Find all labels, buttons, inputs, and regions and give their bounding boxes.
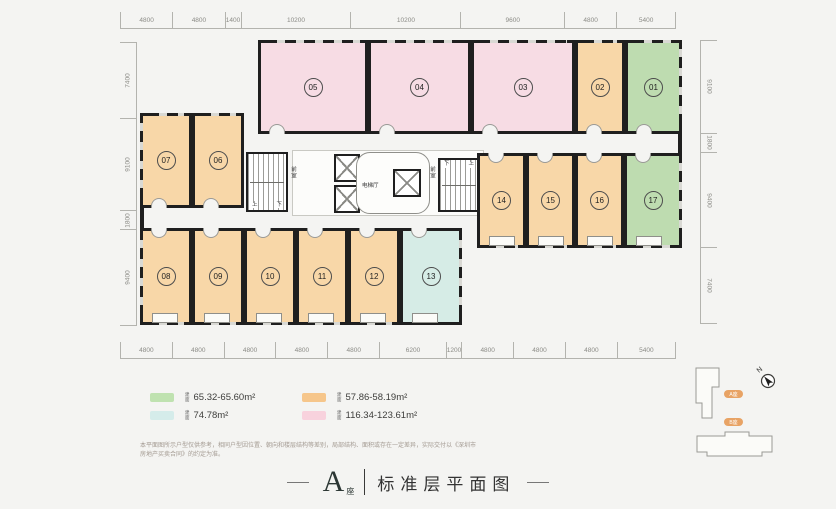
- dim-label-bottom-4: 4800: [328, 342, 380, 358]
- legend-swatch-cyan: [150, 411, 174, 420]
- room-15: 15: [526, 153, 575, 248]
- room-number: 07: [157, 151, 176, 170]
- site-minimap: A座 B座 N: [688, 358, 798, 473]
- room-number: 13: [422, 267, 441, 286]
- balcony-bay: [152, 313, 178, 323]
- legend-item-cyan: 建 面 74.78m²: [150, 408, 255, 422]
- room-number: 04: [410, 78, 429, 97]
- window: [376, 40, 463, 43]
- window: [633, 40, 674, 43]
- window: [140, 237, 143, 316]
- legend-column-2: 建 面 57.86-58.19m² 建 面 116.34-123.61m²: [302, 390, 417, 422]
- balcony-bay: [308, 313, 334, 323]
- room-number: 11: [313, 267, 332, 286]
- stair-east: 下 上: [438, 158, 480, 212]
- room-number: 02: [591, 78, 610, 97]
- balcony-bay: [489, 236, 515, 246]
- room-04: 04: [368, 40, 471, 134]
- door-arc: [636, 124, 652, 134]
- building-b-outline: [697, 432, 772, 456]
- door-arc: [635, 153, 651, 163]
- room-number: 05: [304, 78, 323, 97]
- title-rule-right: [527, 482, 549, 483]
- room-number: 10: [261, 267, 280, 286]
- room-12: 12: [348, 228, 400, 325]
- room-14: 14: [477, 153, 526, 248]
- door-arc: [379, 124, 395, 134]
- legend-item-pink: 建 面 116.34-123.61m²: [302, 408, 417, 422]
- building-a-outline: [696, 368, 719, 418]
- room-number: 17: [644, 191, 663, 210]
- dimensions-top: 4800480014001020010200960048005400: [120, 12, 676, 29]
- room-number: 14: [492, 191, 511, 210]
- legend-item-orange: 建 面 57.86-58.19m²: [302, 390, 417, 404]
- elevator-lobby: 电梯厅: [356, 152, 430, 214]
- dim-label-bottom-5: 6200: [380, 342, 447, 358]
- legend-swatch-green: [150, 393, 174, 402]
- north-label: N: [756, 366, 764, 375]
- dim-label-top-2: 1400: [226, 12, 242, 28]
- legend-value: 74.78m²: [194, 410, 229, 421]
- balcony-bay: [538, 236, 564, 246]
- dim-label-bottom-0: 4800: [120, 342, 173, 358]
- dim-label-bottom-6: 1200: [447, 342, 462, 358]
- door-arc: [359, 228, 375, 238]
- window: [583, 40, 617, 43]
- door-arc: [586, 124, 602, 134]
- dim-label-right-3: 7400: [701, 248, 717, 324]
- room-17: 17: [624, 153, 682, 248]
- stair-up-label: 上: [468, 162, 474, 168]
- building-b-pill: B座: [724, 418, 743, 426]
- stair-down-label: 下: [276, 203, 282, 209]
- room-number: 12: [365, 267, 384, 286]
- legend-unit-tag: 建 面: [337, 410, 342, 420]
- dim-label-bottom-7: 4800: [462, 342, 514, 358]
- legend-unit-tag: 建 面: [185, 410, 190, 420]
- dim-label-right-2: 9400: [701, 153, 717, 249]
- balcony-bay: [256, 313, 282, 323]
- dim-label-top-5: 9600: [461, 12, 565, 28]
- dim-label-bottom-8: 4800: [514, 342, 566, 358]
- dim-label-left-1: 9100: [120, 119, 136, 212]
- door-arc: [269, 124, 285, 134]
- block-suffix: 座: [346, 486, 354, 497]
- room-13: 13: [400, 228, 462, 325]
- legend-unit-tag: 建 面: [185, 392, 190, 402]
- dim-label-top-7: 5400: [617, 12, 676, 28]
- title-text: 标准层平面图: [377, 470, 515, 495]
- room-10: 10: [244, 228, 296, 325]
- dim-label-bottom-2: 4800: [225, 342, 277, 358]
- balcony-bay: [587, 236, 613, 246]
- door-arc: [411, 228, 427, 238]
- room-number: 09: [209, 267, 228, 286]
- legend-swatch-pink: [302, 411, 326, 420]
- stair-up-label: 上: [252, 203, 258, 209]
- room-number: 01: [644, 78, 663, 97]
- dim-label-top-4: 10200: [351, 12, 461, 28]
- room-03: 03: [471, 40, 575, 134]
- door-arc: [488, 153, 504, 163]
- balcony-bay: [636, 236, 662, 246]
- vestibule-west-label: 前室: [289, 166, 297, 179]
- dim-label-left-3: 9400: [120, 230, 136, 326]
- dimensions-left: 7400910018009400: [120, 42, 137, 326]
- door-arc: [537, 153, 553, 163]
- dimensions-bottom: 4800480048004800480062001200480048004800…: [120, 342, 676, 359]
- dim-label-left-0: 7400: [120, 42, 136, 119]
- elevator-lobby-label: 电梯厅: [362, 181, 379, 189]
- dim-label-top-0: 4800: [120, 12, 173, 28]
- legend-value: 65.32-65.60m²: [194, 392, 256, 403]
- disclaimer-text: 本平面图所示户型仅供参考，相同户型因位置、朝向和楼层结构等差别，局部结构、面积或…: [140, 440, 480, 458]
- room-07: 07: [140, 113, 192, 208]
- dim-label-top-1: 4800: [173, 12, 225, 28]
- stair-down-label: 下: [444, 162, 450, 168]
- legend-unit-tag: 建 面: [337, 392, 342, 402]
- room-16: 16: [575, 153, 624, 248]
- dim-label-bottom-3: 4800: [276, 342, 328, 358]
- title-divider: [364, 469, 365, 495]
- block-letter: A: [323, 467, 345, 497]
- floor-plan-page: 4800480014001020010200960048005400 48004…: [0, 0, 836, 509]
- door-arc: [482, 124, 498, 134]
- dim-label-bottom-1: 4800: [173, 342, 225, 358]
- room-05: 05: [258, 40, 368, 134]
- door-arc: [203, 198, 219, 208]
- dim-label-bottom-9: 4800: [566, 342, 618, 358]
- dim-label-right-1: 1800: [701, 134, 717, 153]
- dim-label-bottom-10: 5400: [618, 342, 676, 358]
- room-09: 09: [192, 228, 244, 325]
- legend-value: 57.86-58.19m²: [346, 392, 408, 403]
- dimensions-right: 9100180094007400: [700, 40, 717, 324]
- dim-label-left-2: 1800: [120, 211, 136, 230]
- dim-label-right-0: 9100: [701, 40, 717, 134]
- door-arc: [203, 228, 219, 238]
- door-arc: [307, 228, 323, 238]
- building-a-label: A座: [729, 391, 737, 398]
- legend-column-1: 建 面 65.32-65.60m² 建 面 74.78m²: [150, 390, 255, 422]
- room-number: 03: [514, 78, 533, 97]
- balcony-bay: [204, 313, 230, 323]
- door-arc: [151, 228, 167, 238]
- window: [679, 162, 682, 239]
- door-arc: [255, 228, 271, 238]
- room-02: 02: [575, 40, 625, 134]
- building-b-label: B座: [729, 419, 737, 426]
- window: [459, 237, 462, 316]
- vestibule-east-label: 前室: [428, 166, 436, 179]
- room-11: 11: [296, 228, 348, 325]
- legend-item-green: 建 面 65.32-65.60m²: [150, 390, 255, 404]
- room-number: 15: [541, 191, 560, 210]
- north-compass-icon: N: [756, 366, 775, 388]
- window: [679, 49, 682, 125]
- balcony-bay: [360, 313, 386, 323]
- room-01: 01: [625, 40, 682, 134]
- window: [266, 40, 360, 43]
- legend-value: 116.34-123.61m²: [346, 410, 418, 421]
- window: [479, 40, 567, 43]
- room-number: 08: [157, 267, 176, 286]
- dim-label-top-3: 10200: [242, 12, 352, 28]
- door-arc: [586, 153, 602, 163]
- title-rule-left: [287, 482, 309, 483]
- balcony-bay: [412, 313, 438, 323]
- elevator-shaft-3: [393, 169, 421, 197]
- room-08: 08: [140, 228, 192, 325]
- building-a-pill: A座: [724, 390, 743, 398]
- room-number: 06: [209, 151, 228, 170]
- legend-swatch-orange: [302, 393, 326, 402]
- window: [148, 113, 184, 116]
- dim-label-top-6: 4800: [565, 12, 617, 28]
- window: [140, 122, 143, 199]
- stair-west: 上 下: [246, 152, 288, 212]
- room-06: 06: [192, 113, 244, 208]
- room-number: 16: [590, 191, 609, 210]
- window: [200, 113, 236, 116]
- door-arc: [151, 198, 167, 208]
